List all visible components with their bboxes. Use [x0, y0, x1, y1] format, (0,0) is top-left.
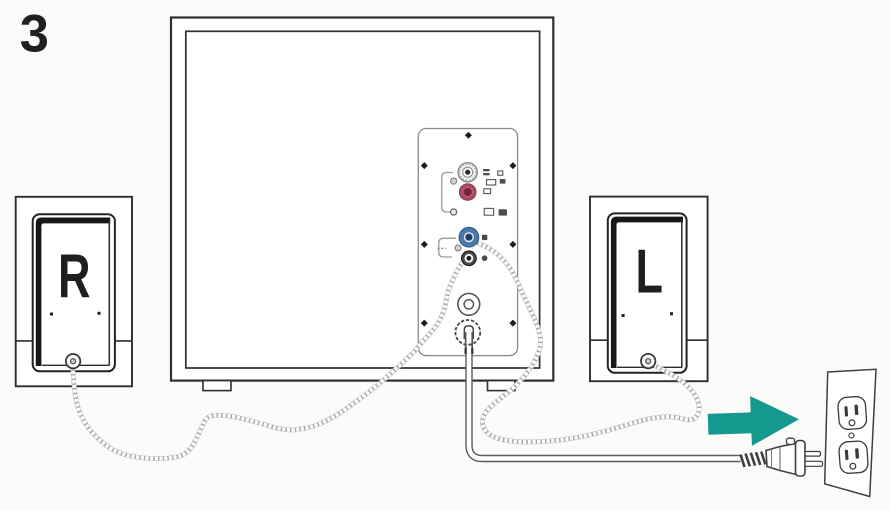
svg-text:3: 3	[20, 4, 49, 63]
svg-text:L: L	[636, 236, 663, 306]
svg-text:R: R	[58, 241, 90, 311]
